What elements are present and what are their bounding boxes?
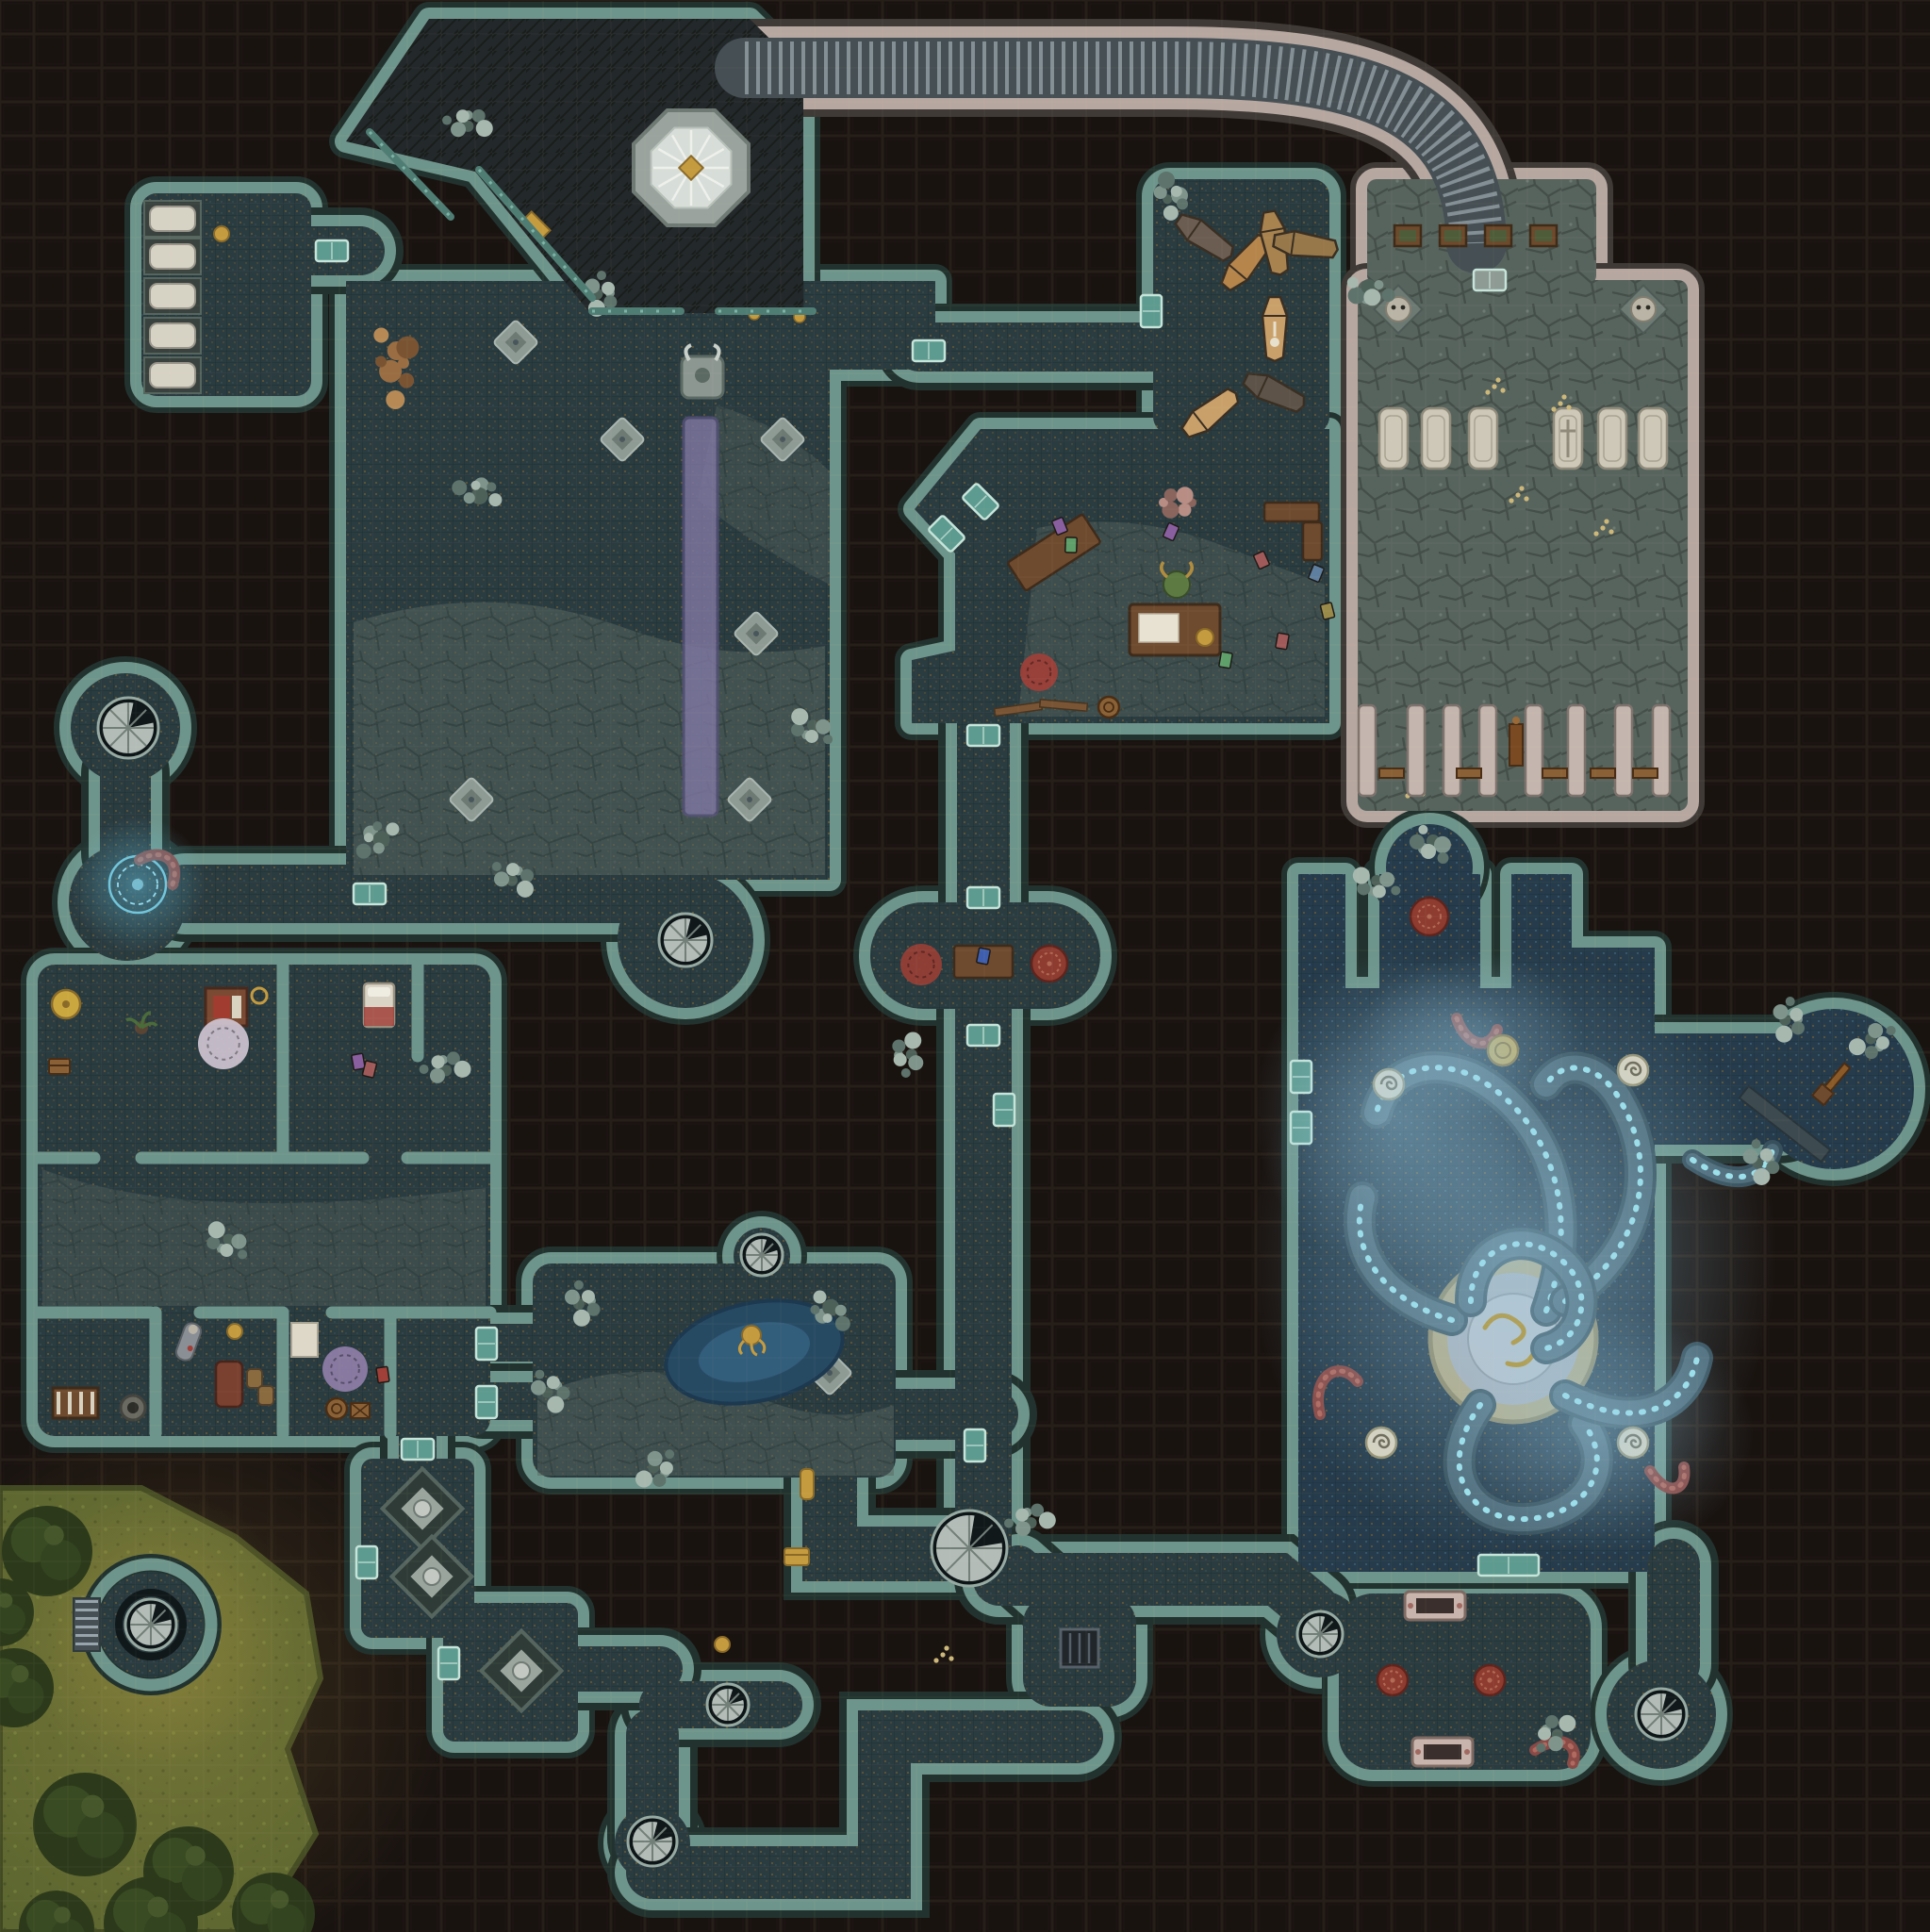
red-mandala-circle [1031, 946, 1067, 982]
red-mandala-circle [1377, 1665, 1408, 1695]
cell-bench [1542, 768, 1567, 778]
gold-trinket [214, 226, 229, 241]
door[interactable] [1141, 295, 1162, 327]
door[interactable] [913, 340, 945, 361]
crate [351, 1403, 370, 1418]
book [376, 1366, 389, 1383]
round-rug [198, 1018, 249, 1069]
crypt-pillar [1443, 705, 1460, 796]
ornate-gate[interactable] [1412, 1738, 1473, 1766]
magic-glow [70, 817, 206, 952]
cell-bench [1457, 768, 1481, 778]
door[interactable] [476, 1386, 497, 1418]
parchment-map [291, 1323, 318, 1357]
gold-trinket [715, 1637, 730, 1652]
tree-canopy [33, 1773, 137, 1876]
crypt-pillar [1526, 705, 1542, 796]
door[interactable] [402, 1439, 434, 1460]
spiral-staircase[interactable] [741, 1234, 783, 1276]
gold-trinket [227, 1324, 242, 1339]
door[interactable] [1478, 1555, 1539, 1576]
burial-niche [144, 201, 201, 237]
straight-stairs [74, 1598, 100, 1651]
standing-sarcophagus [1598, 408, 1626, 469]
barrel [1098, 697, 1119, 718]
bedroll [216, 1362, 242, 1407]
door[interactable] [967, 887, 999, 908]
wooden-table [1264, 503, 1319, 521]
crypt-pillar [1568, 705, 1585, 796]
shrine-altar [634, 110, 749, 225]
book [352, 1053, 366, 1070]
door[interactable] [354, 883, 386, 904]
burial-niche [144, 239, 201, 274]
spiral-staircase[interactable] [628, 1817, 677, 1866]
door[interactable] [316, 240, 348, 261]
spiral-staircase[interactable] [1297, 1611, 1343, 1657]
door[interactable] [356, 1546, 377, 1578]
cell-gate[interactable] [1509, 717, 1523, 766]
fire-pit [121, 1395, 145, 1420]
wall-plaque [1440, 225, 1466, 246]
spiral-staircase[interactable] [932, 1511, 1007, 1586]
crypt-pillar [1359, 705, 1376, 796]
standing-sarcophagus [1379, 408, 1408, 469]
study-desk [1130, 604, 1220, 655]
door[interactable] [994, 1094, 1014, 1126]
door[interactable] [967, 725, 999, 746]
bunk-frame [53, 1388, 98, 1418]
dungeon-map-canvas[interactable] [0, 0, 1930, 1932]
barrel [326, 1398, 347, 1419]
cell-bench [1633, 768, 1658, 778]
burial-niche [144, 278, 201, 314]
standing-sarcophagus [1554, 408, 1582, 469]
round-rug [322, 1346, 368, 1392]
burial-niche [144, 357, 201, 393]
spiral-staircase[interactable] [1636, 1689, 1687, 1740]
red-mandala-circle [1475, 1665, 1505, 1695]
corridor-pouch-neck [1018, 1567, 1061, 1605]
wall-plaque [1530, 225, 1557, 246]
spiral-staircase[interactable] [707, 1684, 749, 1726]
spiral-staircase[interactable] [659, 914, 712, 966]
book [1065, 537, 1078, 553]
wooden-table [1303, 522, 1322, 560]
spiral-staircase[interactable] [98, 698, 158, 758]
crypt-pillar [1408, 705, 1425, 796]
gold-chest [784, 1548, 809, 1565]
bed [364, 983, 394, 1027]
door[interactable] [967, 1025, 999, 1046]
wall-plaque [1485, 225, 1511, 246]
gold-statue [800, 1469, 814, 1499]
backpack [247, 1369, 262, 1388]
burial-niche [144, 318, 201, 354]
arcane-mist [1452, 1311, 1754, 1556]
door[interactable] [1474, 270, 1506, 290]
dungeon-map-svg [0, 0, 1930, 1932]
door[interactable] [476, 1328, 497, 1360]
gold-shield [52, 990, 80, 1018]
door[interactable] [965, 1429, 985, 1461]
book [1219, 652, 1233, 669]
wooden-coffin [1262, 297, 1287, 361]
crypt-pillar [1653, 705, 1670, 796]
wall-plaque [1394, 225, 1421, 246]
wooden-chest [49, 1059, 70, 1074]
cell-bench [1591, 768, 1615, 778]
floor-grate[interactable] [1061, 1629, 1098, 1667]
spiral-staircase[interactable] [125, 1599, 176, 1650]
book [1276, 633, 1290, 650]
